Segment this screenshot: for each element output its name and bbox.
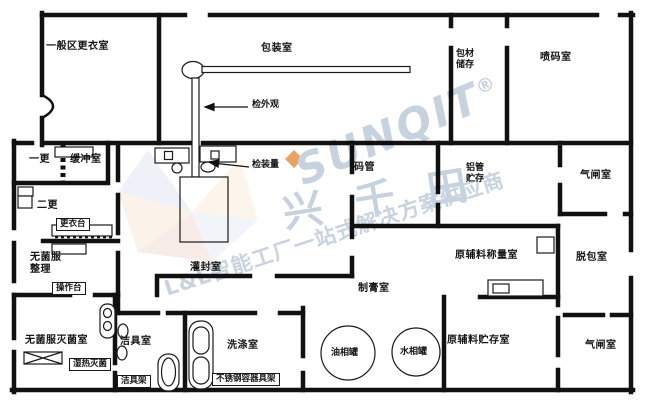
room-label-sterile-sterilization: 无菌服灭菌室 — [25, 335, 88, 347]
room-label-weighing: 原辅料称量室 — [455, 250, 518, 262]
room-label-raw-storage: 原辅料贮存室 — [447, 335, 510, 347]
room-label-tube-coding: 码管 — [354, 162, 375, 174]
room-label-buffer: 缓冲室 — [70, 154, 102, 166]
room-label-filling-sealing: 灌封室 — [190, 262, 222, 274]
label-moist-heat: 湿热灭菌 — [69, 358, 111, 371]
room-label-packmat-storage: 包材 储存 — [456, 49, 474, 71]
room-label-general-changing: 一般区更衣室 — [46, 41, 109, 53]
label-cleaning-rack: 洁具架 — [117, 375, 151, 388]
door-arc — [42, 95, 53, 118]
arrow-inspect-appearance — [205, 104, 214, 111]
label-water-tank: 水相罐 — [400, 347, 427, 358]
floor-plan: 一般区更衣室 包装室 包材 储存 喷码室 一更 缓冲室 二更 无菌服 整理 无菌… — [0, 0, 650, 403]
label-ss-container-rack: 不锈钢容器具架 — [212, 373, 280, 386]
label-oil-tank: 油相罐 — [331, 348, 358, 359]
room-label-spray-code: 喷码室 — [540, 52, 572, 64]
conveyor-belt — [202, 67, 410, 73]
conveyor-wheel — [182, 62, 204, 79]
room-label-cleaning-tools: 洁具室 — [120, 336, 152, 348]
label-operating-table: 操作台 — [52, 282, 86, 295]
label-gowning-table: 更衣台 — [56, 218, 90, 231]
room-label-airlock-top: 气闸室 — [580, 170, 612, 182]
conveyor-riser — [192, 78, 199, 177]
room-label-sterile-sorting: 无菌服 整理 — [30, 252, 62, 276]
annotation-inspect-appearance: 检外观 — [252, 100, 279, 111]
room-label-depacking: 脱包室 — [576, 252, 608, 264]
room-label-airlock-bottom: 气闸室 — [585, 340, 617, 352]
annotation-inspect-fill: 检装量 — [252, 160, 279, 171]
filling-machine — [180, 177, 228, 242]
room-label-second-change: 二更 — [37, 200, 58, 212]
room-label-washing: 洗涤室 — [227, 340, 259, 352]
room-label-alu-tube-storage: 铝管 贮存 — [466, 163, 484, 185]
room-label-first-change: 一更 — [29, 154, 50, 166]
room-label-packaging: 包装室 — [261, 43, 293, 55]
room-label-paste-making: 制膏室 — [358, 283, 390, 295]
